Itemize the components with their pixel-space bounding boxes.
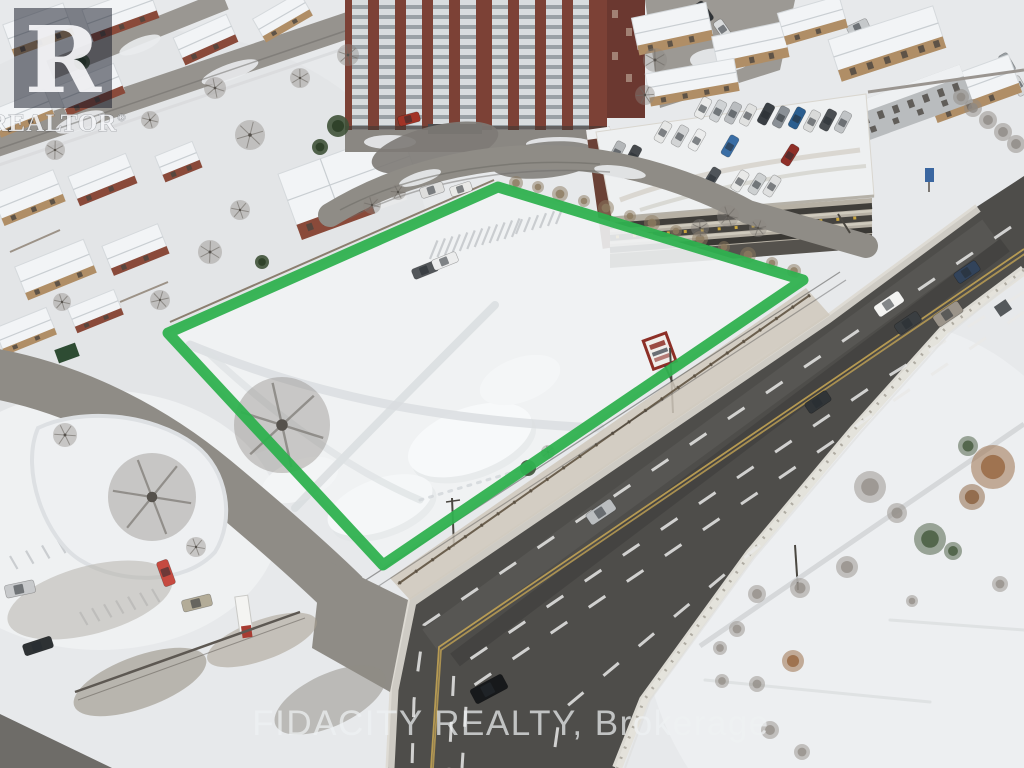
realtor-letter-r: R [25, 6, 102, 114]
scene-canvas: R REALTOR® FIDACITY REALTY, Brokerage [0, 0, 1024, 768]
realtor-wordmark: REALTOR® [0, 110, 127, 137]
balcony-columns [352, 0, 589, 130]
realtor-watermark-logo: R REALTOR® [0, 6, 127, 137]
blue-street-sign [925, 168, 934, 182]
brokerage-watermark: FIDACITY REALTY, Brokerage [252, 704, 770, 743]
aerial-listing-photo: R REALTOR® FIDACITY REALTY, Brokerage [0, 0, 1024, 768]
